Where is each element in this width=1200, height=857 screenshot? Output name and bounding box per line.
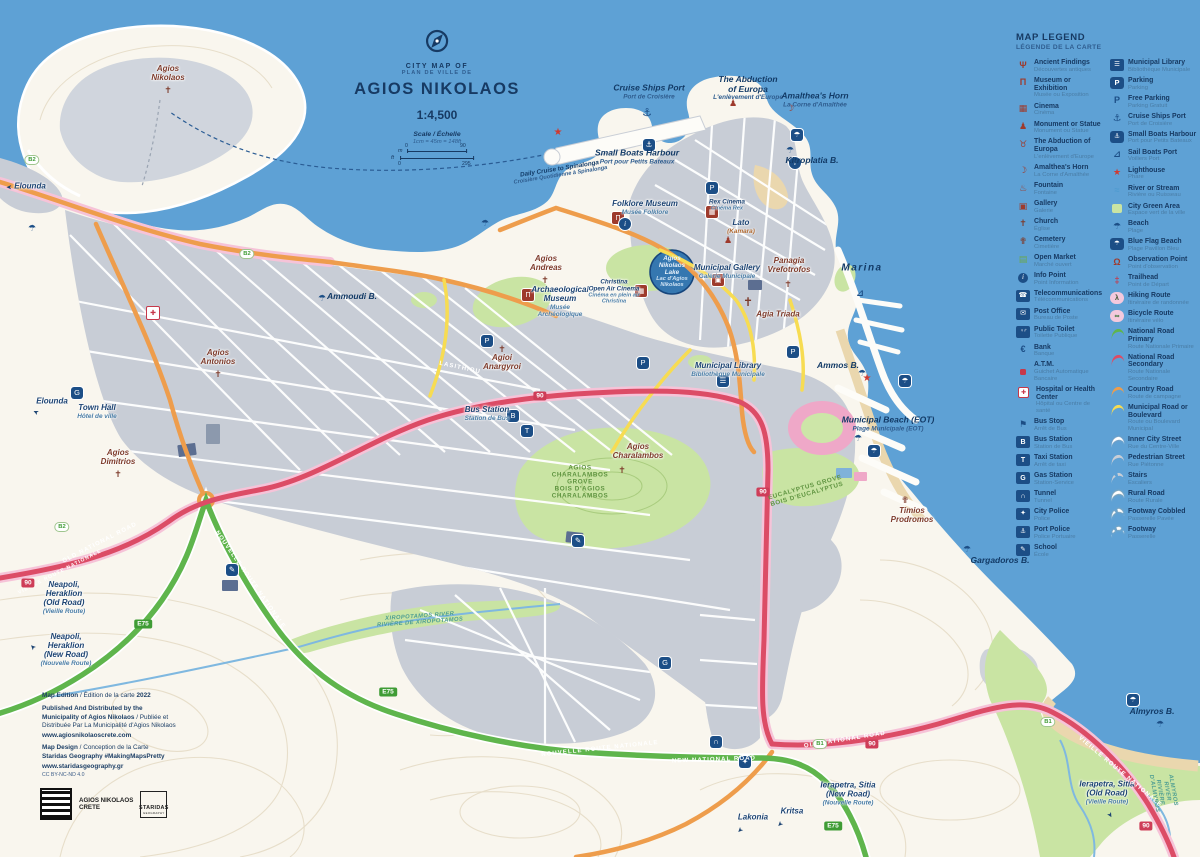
credit-marks: AGIOS NIKOLAOS CRETE STARIDAS GEOGRAPHY	[40, 788, 167, 820]
staridas-logo: STARIDAS GEOGRAPHY	[140, 791, 167, 818]
qr-label: AGIOS NIKOLAOS CRETE	[79, 797, 133, 812]
direction-arrow-icon: ➤	[6, 183, 12, 191]
city-map-page: ✝ ✝ ✝ ✝ ✝ ✝ ✝ ✝ ✟ Π Π ♟ ♟ ☽ ▣ ▦ ▦ ⚓ ⚓ ⊿ …	[0, 0, 1200, 857]
map-canvas	[0, 0, 1200, 857]
qr-code	[40, 788, 72, 820]
